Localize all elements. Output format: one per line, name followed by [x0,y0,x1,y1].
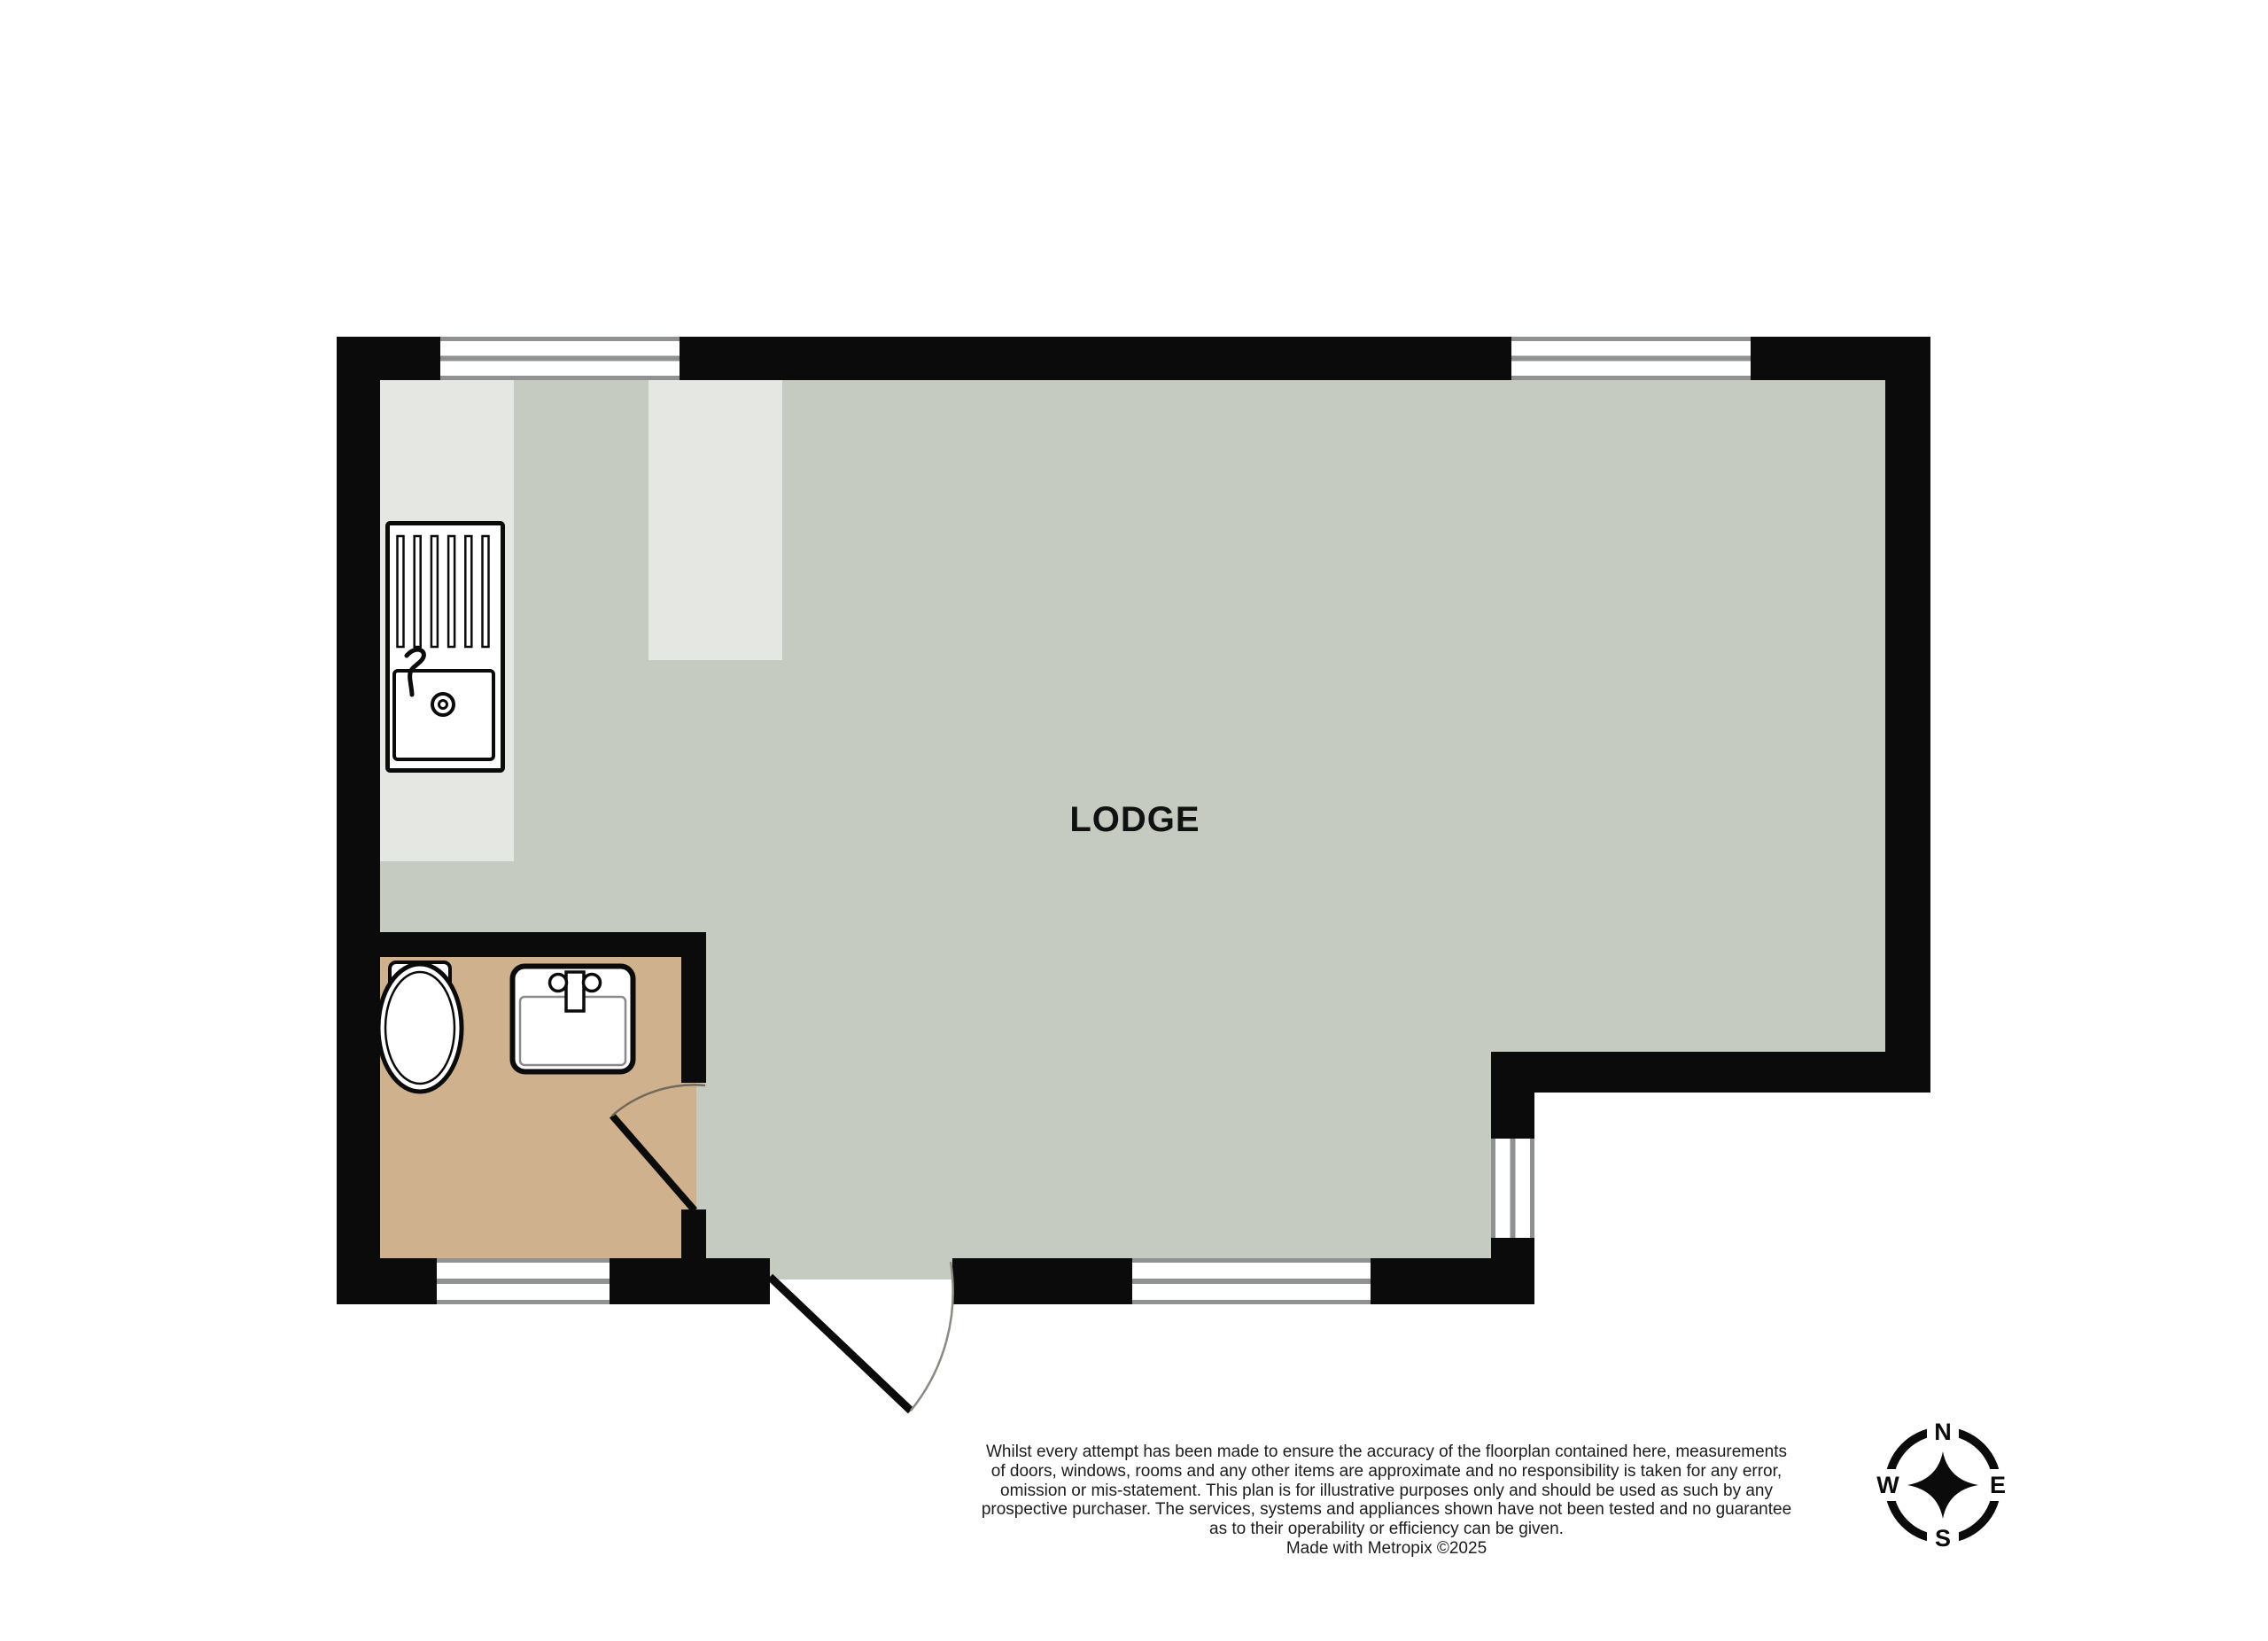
disclaimer-credit: Made with Metropix ©2025 [926,1539,1847,1559]
compass-west-label: W [1876,1472,1899,1498]
disclaimer-line: prospective purchaser. The services, sys… [926,1500,1847,1520]
compass-south-label: S [1935,1525,1951,1552]
entrance-door-arc [911,1262,953,1411]
room-label: LODGE [958,800,1312,840]
disclaimer-line: omission or mis-statement. This plan is … [926,1482,1847,1501]
disclaimer-line: of doors, windows, rooms and any other i… [926,1462,1847,1482]
compass-rose-icon: N E S W [1876,1418,2010,1552]
floorplan-canvas: LODGE Whilst every attempt has been made… [0,0,2268,1641]
bathroom-door-arc [612,1085,705,1116]
compass-east-label: E [1990,1472,2006,1498]
disclaimer-line: Whilst every attempt has been made to en… [926,1443,1847,1462]
compass-star [1907,1451,1978,1519]
compass-north-label: N [1934,1419,1952,1445]
bathroom-door-leaf [612,1116,695,1210]
disclaimer-line: as to their operability or efficiency ca… [926,1520,1847,1539]
entrance-door-leaf [770,1277,911,1411]
disclaimer-text: Whilst every attempt has been made to en… [926,1443,1847,1559]
